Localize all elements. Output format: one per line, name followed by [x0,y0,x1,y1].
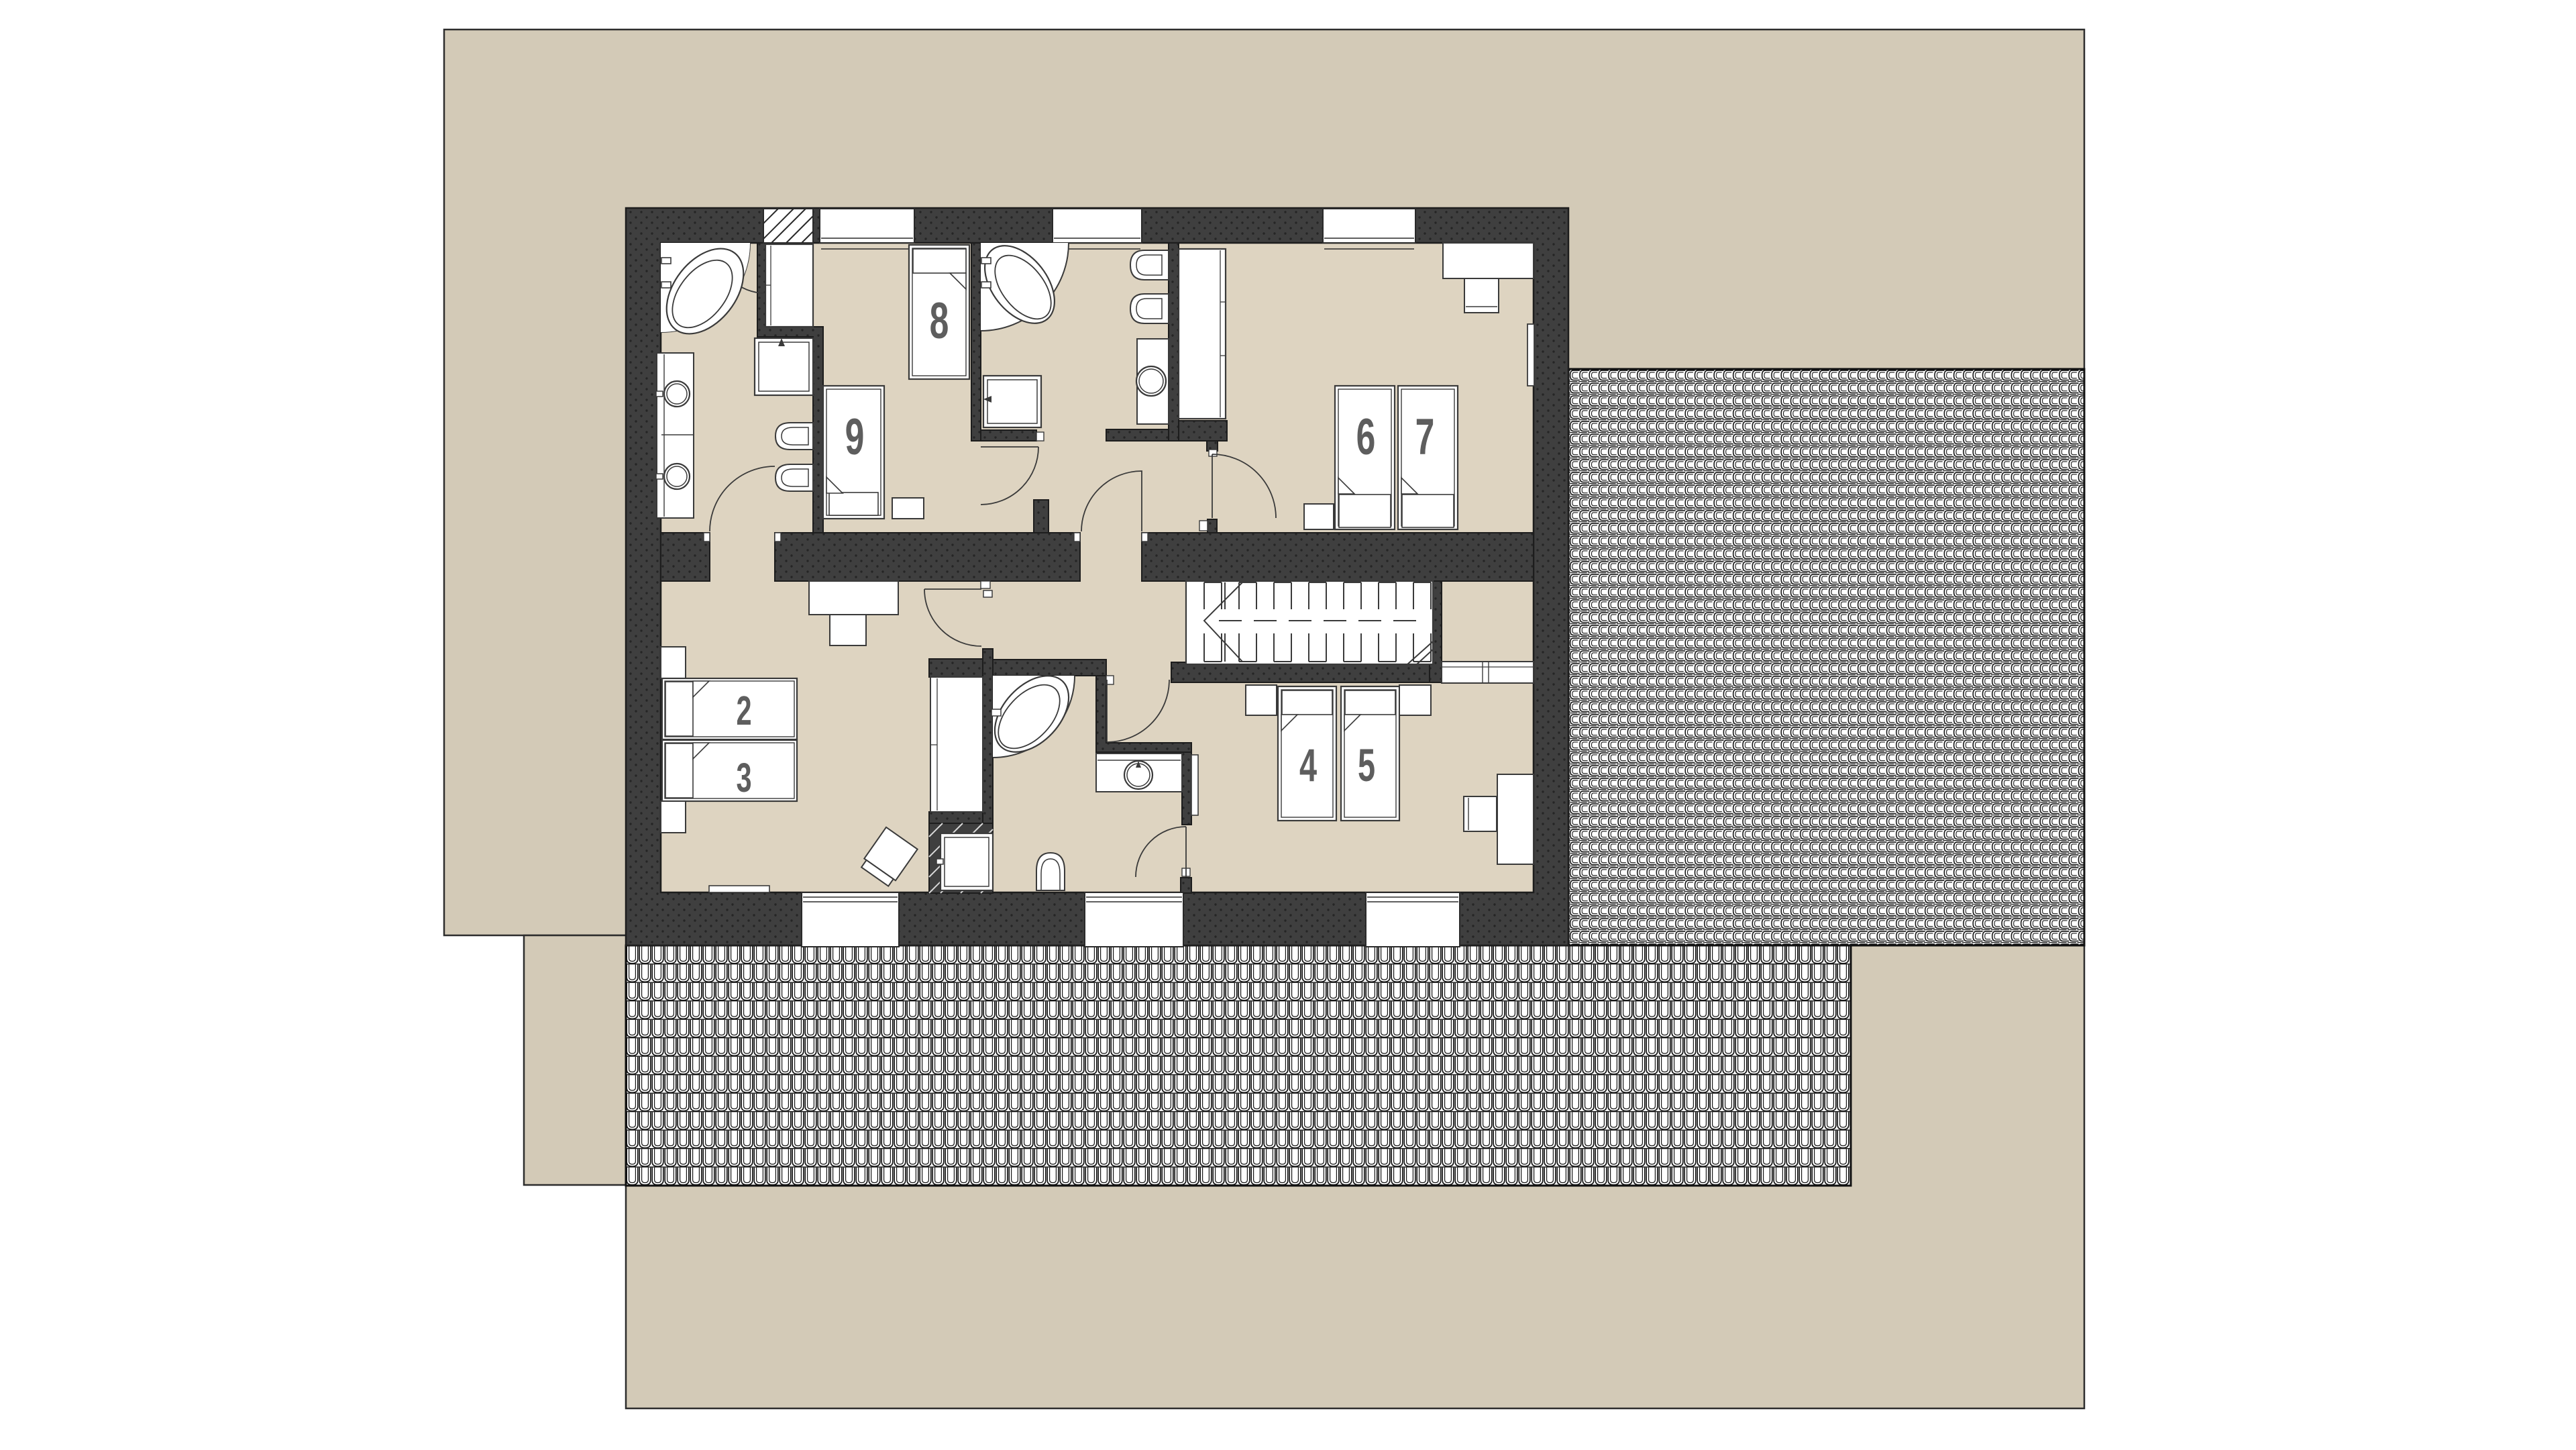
svg-text:6: 6 [1356,408,1376,465]
svg-text:5: 5 [1358,739,1375,791]
svg-text:2: 2 [736,688,751,734]
svg-text:9: 9 [845,408,865,465]
svg-text:4: 4 [1299,739,1317,791]
svg-text:8: 8 [930,292,949,349]
svg-text:3: 3 [736,756,751,801]
svg-text:7: 7 [1415,408,1435,465]
